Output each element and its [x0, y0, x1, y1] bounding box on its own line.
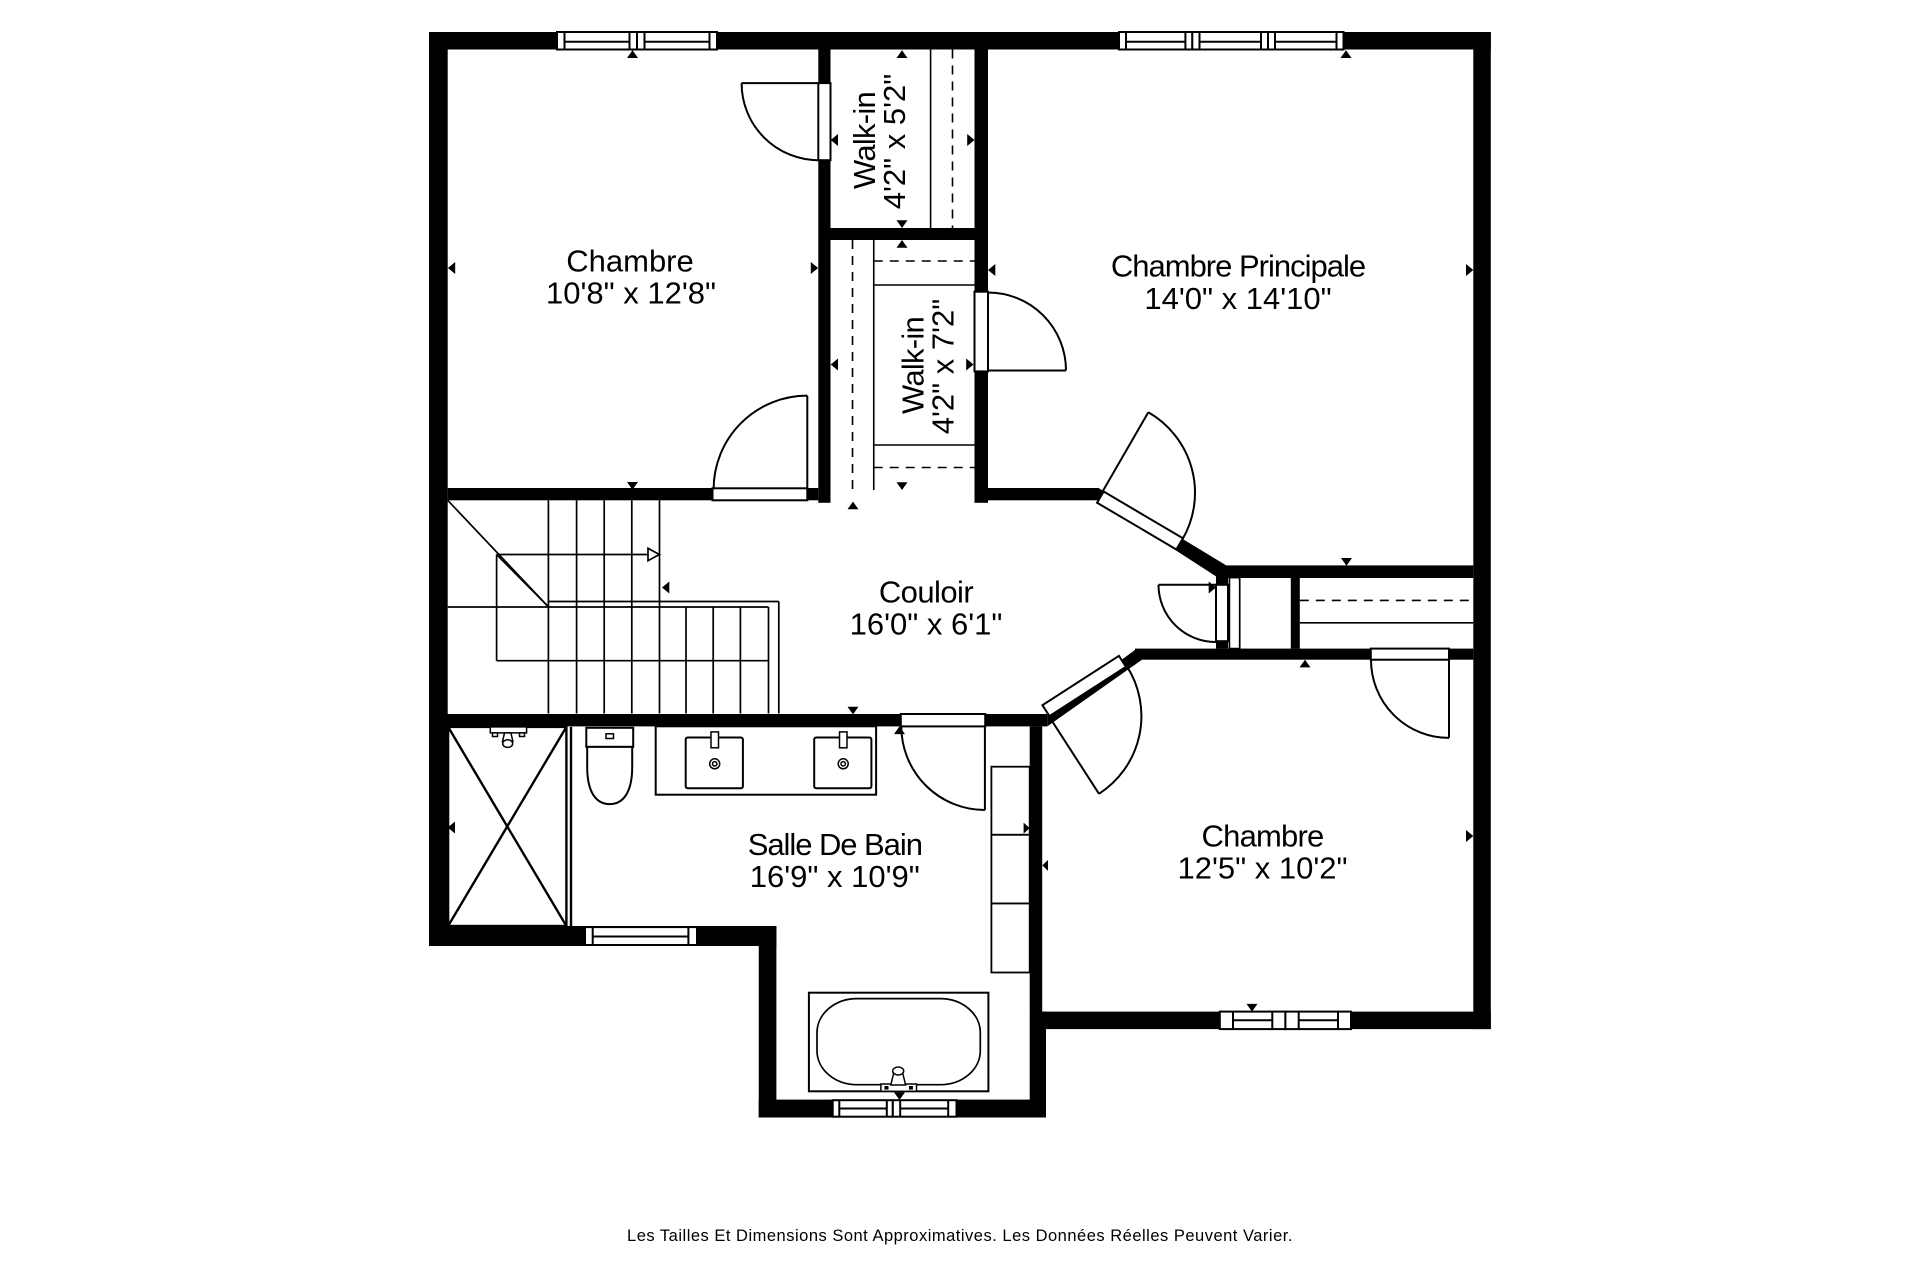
svg-text:16'0" x 6'1": 16'0" x 6'1"	[850, 606, 1003, 641]
svg-text:Chambre Principale: Chambre Principale	[1111, 249, 1365, 284]
svg-text:10'8" x 12'8": 10'8" x 12'8"	[546, 275, 716, 310]
svg-text:12'5" x 10'2": 12'5" x 10'2"	[1177, 851, 1347, 886]
svg-text:14'0" x 14'10": 14'0" x 14'10"	[1144, 281, 1331, 316]
svg-text:Chambre: Chambre	[1202, 819, 1324, 854]
svg-text:Chambre: Chambre	[566, 243, 694, 278]
svg-text:4'2" x 7'2": 4'2" x 7'2"	[926, 299, 961, 435]
svg-text:16'9" x 10'9": 16'9" x 10'9"	[750, 859, 920, 894]
svg-text:4'2" x 5'2": 4'2" x 5'2"	[877, 74, 912, 210]
svg-text:Les Tailles Et Dimensions Sont: Les Tailles Et Dimensions Sont Approxima…	[627, 1227, 1293, 1245]
svg-text:Couloir: Couloir	[879, 575, 974, 610]
svg-text:Salle De Bain: Salle De Bain	[748, 827, 922, 862]
